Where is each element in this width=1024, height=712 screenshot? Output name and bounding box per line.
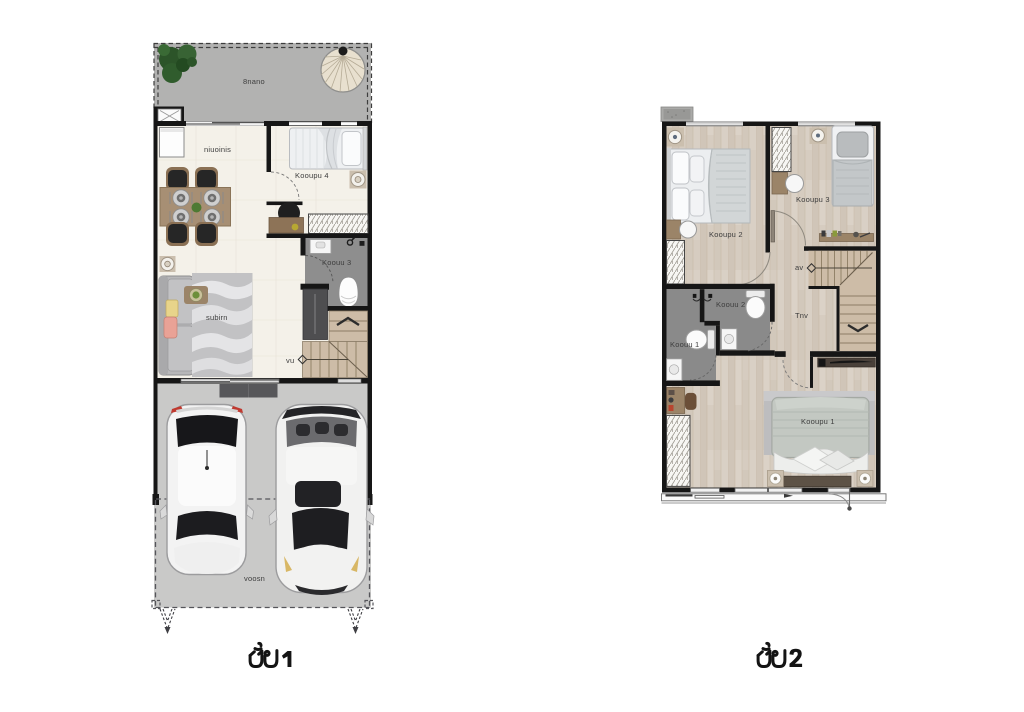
svg-text:subirn: subirn [206, 313, 228, 322]
svg-text:Kooupu 4: Kooupu 4 [295, 171, 329, 180]
svg-text:niuoinis: niuoinis [204, 145, 231, 154]
svg-text:8nano: 8nano [243, 77, 265, 86]
svg-text:vu: vu [286, 356, 294, 365]
svg-text:av: av [795, 263, 803, 272]
svg-text:Koouu 2: Koouu 2 [716, 300, 745, 309]
svg-text:Koouu 3: Koouu 3 [322, 258, 351, 267]
svg-text:Kooupu 3: Kooupu 3 [796, 195, 830, 204]
svg-text:Kooupu 1: Kooupu 1 [801, 417, 835, 426]
svg-text:Kooupu 2: Kooupu 2 [709, 230, 743, 239]
svg-text:voosn: voosn [244, 574, 265, 583]
svg-text:Tnv: Tnv [795, 311, 808, 320]
svg-text:Koouu 1: Koouu 1 [670, 340, 699, 349]
